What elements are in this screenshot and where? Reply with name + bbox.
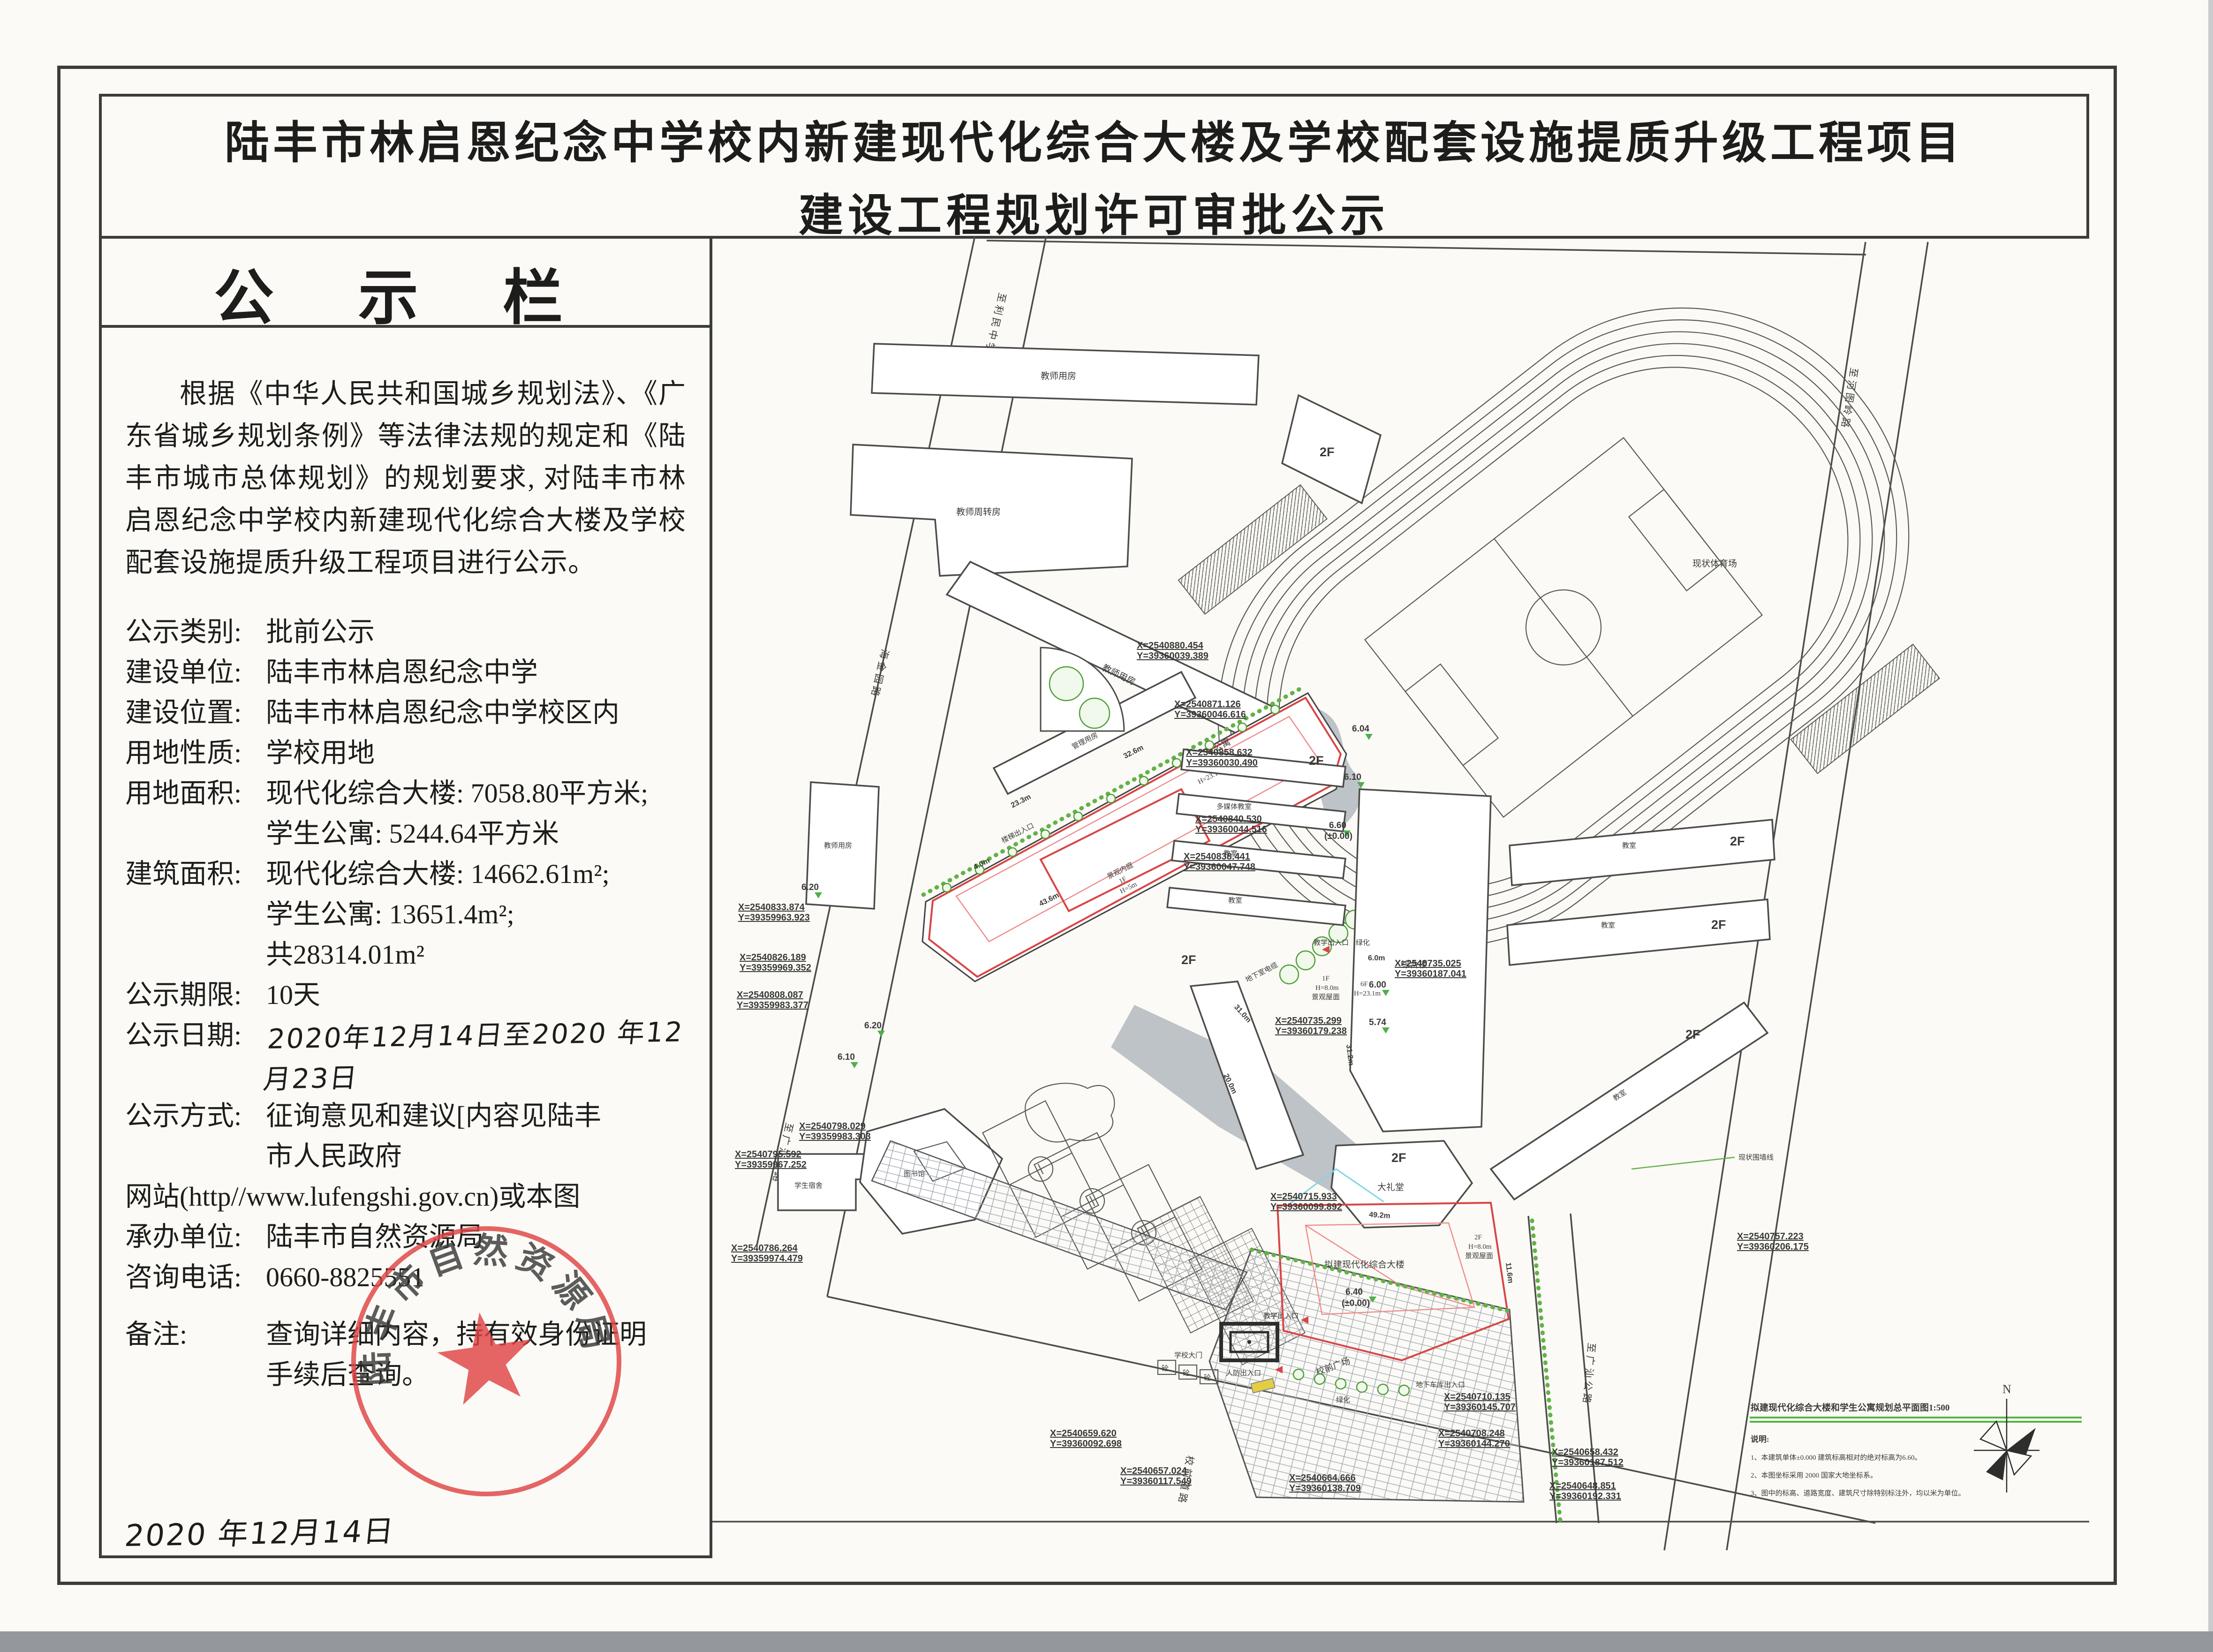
scanned-notice-page: 陆丰市林启恩纪念中学校内新建现代化综合大楼及学校配套设施提质升级工程项目 建设工… xyxy=(0,0,2213,1652)
coord-callout: X=2540795.592Y=39359967.252 xyxy=(735,1149,807,1170)
document-title: 陆丰市林启恩纪念中学校内新建现代化综合大楼及学校配套设施提质升级工程项目 建设工… xyxy=(99,94,2089,239)
field-row: 用地面积:现代化综合大楼: 7058.80平方米; xyxy=(125,773,686,814)
svg-text:景观屋面: 景观屋面 xyxy=(1312,993,1340,1001)
coord-callout: X=2540880.454Y=39360039.389 xyxy=(1137,641,1208,661)
coord-callout: X=2540808.087Y=39359983.377 xyxy=(737,990,808,1011)
svg-text:6.20: 6.20 xyxy=(864,1021,882,1031)
coord-callout: X=2540658.432Y=39360187.512 xyxy=(1552,1447,1624,1468)
svg-text:6.20: 6.20 xyxy=(801,883,819,892)
coord-callout: X=2540858.632Y=39360030.490 xyxy=(1186,747,1258,768)
gate-label: 学校大门 xyxy=(1174,1351,1202,1359)
svg-text:6.60: 6.60 xyxy=(1329,821,1346,830)
website-value: (http//www.lufengshi.gov.cn)或本图 xyxy=(180,1177,580,1217)
green-label: 绿化 xyxy=(1356,939,1370,947)
dim-label: 23.3m xyxy=(1010,793,1032,810)
field-row: 公示方式:征询意见和建议[内容见陆丰 xyxy=(125,1096,686,1136)
coord-callout: X=2540735.299Y=39360179.238 xyxy=(1275,1016,1347,1036)
handwritten-sign-date: 2020 年12月14日 xyxy=(123,1509,458,1557)
scan-edge-right xyxy=(2208,0,2213,1652)
field-cont: 学生公寓: 5244.64平方米 xyxy=(266,814,686,854)
proposed-student-apartment: 拟建学生公寓 6F H=23.10m 景观内庭 1F H=5m 楼梯出入口 xyxy=(922,688,1346,981)
floor-label: 2F xyxy=(1711,918,1726,932)
field-row: 公示期限:10天 xyxy=(125,975,686,1015)
coord-callout: X=2540826.189Y=39359969.352 xyxy=(740,952,811,973)
dim-label: 6.0m xyxy=(1368,954,1385,962)
stair-entry-label: 楼梯出入口 xyxy=(1000,822,1035,845)
field-cont: 共28314.01m² xyxy=(266,935,686,975)
svg-text:1F: 1F xyxy=(1322,975,1329,982)
svg-text:6.10: 6.10 xyxy=(838,1052,855,1062)
road-label-to-limin: 至利民中学 xyxy=(983,292,1008,356)
floor-label: 2F xyxy=(1391,1151,1406,1165)
coord-callout: X=2540838.441Y=39360047.748 xyxy=(1184,852,1255,872)
floor-label: 2F xyxy=(1309,754,1324,768)
building-label: 学生宿舍 xyxy=(794,1182,823,1190)
floor-label: 2F xyxy=(1320,445,1335,459)
coord-callout: X=2540657.024Y=39360117.549 xyxy=(1120,1466,1192,1486)
coord-callout: X=2540664.666Y=39360138.709 xyxy=(1289,1473,1361,1494)
floor-label: 2F xyxy=(1181,953,1196,967)
field-row: 建设位置:陆丰市林启恩纪念中学校区内 xyxy=(125,693,686,733)
handwritten-dates: 2020年12月14日至2020 年12 月23日 xyxy=(261,1011,691,1100)
coord-callout: X=2540757.223Y=39360206.175 xyxy=(1737,1231,1809,1252)
official-red-stamp: 陆丰市自然资源局 xyxy=(343,1218,629,1504)
building-label: 教室 xyxy=(1601,921,1615,929)
roof-label-1f: 1F H=8.0m 景观屋面 xyxy=(1312,975,1340,1001)
field-row: 公示类别:批前公示 xyxy=(125,612,686,652)
cable-label: 地下室电缆 xyxy=(1244,961,1279,984)
bleachers xyxy=(1791,644,1940,774)
note-2: 2、本图坐标采用 2000 国家大地坐标系。 xyxy=(1751,1471,1877,1479)
notice-board-panel: 公 示 栏 根据《中华人民共和国城乡规划法》、《广东省城乡规划条例》等法律法规的… xyxy=(99,236,712,1558)
field-cont: 学生公寓: 13651.4m²; xyxy=(266,894,686,935)
svg-text:6F: 6F xyxy=(1360,981,1368,988)
stamp-star xyxy=(432,1306,538,1407)
floor-label: 2F xyxy=(1730,834,1745,848)
tree-icon xyxy=(1050,667,1083,701)
svg-text:(±0.00): (±0.00) xyxy=(1324,831,1352,841)
building-label: 教师用房 xyxy=(824,842,852,850)
coord-callout: X=2540871.126Y=39360046.616 xyxy=(1174,699,1246,720)
garage-label: 地下车库出入口 xyxy=(1416,1381,1465,1389)
coord-callout: X=2540659.620Y=39360092.698 xyxy=(1050,1428,1122,1449)
building-label: 教室 xyxy=(1228,897,1242,905)
svg-text:H=8.0m: H=8.0m xyxy=(1468,1243,1492,1251)
road-label-left-road: 海金园路 xyxy=(869,648,891,700)
elevation-marker: 6.04 xyxy=(1352,724,1373,740)
field-cont: 市人民政府 xyxy=(266,1136,686,1177)
note-1: 1、本建筑单体±0.000 建筑标高相对的绝对标高为6.60。 xyxy=(1751,1454,1922,1462)
green-label: 绿化 xyxy=(1336,1396,1350,1404)
map-legend: 拟建现代化综合大楼和学生公寓规划总平面图1:500 说明: 1、本建筑单体±0.… xyxy=(1750,1402,2082,1497)
svg-text:6.40: 6.40 xyxy=(1345,1287,1363,1297)
svg-text:砼: 砼 xyxy=(1162,1365,1169,1373)
coord-callout: X=2540786.264Y=39359974.479 xyxy=(731,1243,803,1264)
dim-label: 11.6m xyxy=(1504,1262,1514,1283)
coord-callout: X=2540648.851Y=39360192.331 xyxy=(1549,1481,1621,1501)
building-label: 大礼堂 xyxy=(1377,1182,1404,1192)
svg-text:H=8.0m: H=8.0m xyxy=(1315,984,1339,992)
title-line-2: 建设工程规划许可审批公示 xyxy=(102,180,2086,244)
teach-entry-label: 教学出入口 xyxy=(1314,939,1349,947)
svg-text:6.00: 6.00 xyxy=(1369,980,1386,990)
north-compass-icon: N xyxy=(1974,1382,2039,1493)
svg-text:砼: 砼 xyxy=(1204,1374,1211,1382)
green-underline xyxy=(1750,1418,2082,1422)
pond xyxy=(1025,1083,1114,1142)
scan-edge-bottom xyxy=(0,1631,2213,1652)
building-label: 教师周转房 xyxy=(956,507,1001,517)
map-title: 拟建现代化综合大楼和学生公寓规划总平面图1:500 xyxy=(1751,1402,1949,1413)
hedge-line xyxy=(1532,1221,1560,1521)
title-line-1: 陆丰市林启恩纪念中学校内新建现代化综合大楼及学校配套设施提质升级工程项目 xyxy=(102,107,2086,171)
field-row: 建筑面积:现代化综合大楼: 14662.61m²; xyxy=(125,854,686,894)
stadium-label: 现状体育场 xyxy=(1692,558,1737,569)
elevation-marker: 6.10 xyxy=(838,1052,858,1068)
field-row: 用地性质:学校用地 xyxy=(125,733,686,773)
svg-text:6.10: 6.10 xyxy=(1344,772,1361,782)
main-building-label: 拟建现代化综合大楼 xyxy=(1324,1260,1405,1270)
building-label: 教室 xyxy=(1622,842,1636,850)
svg-text:6.04: 6.04 xyxy=(1352,724,1369,734)
svg-text:景观屋面: 景观屋面 xyxy=(1465,1252,1493,1260)
svg-text:现状围墙线: 现状围墙线 xyxy=(1738,1154,1774,1162)
wall-note: 现状围墙线 xyxy=(1631,1154,1774,1169)
note-head: 说明: xyxy=(1751,1434,1769,1444)
svg-text:N: N xyxy=(2002,1382,2011,1396)
intro-paragraph: 根据《中华人民共和国城乡规划法》、《广东省城乡规划条例》等法律法规的规定和《陆丰… xyxy=(125,373,686,584)
dim-label: 32.6m xyxy=(1122,744,1145,761)
tree-icon xyxy=(1080,698,1110,728)
website-label: 网站 xyxy=(125,1177,180,1217)
svg-text:砼: 砼 xyxy=(1183,1369,1190,1377)
coord-callout: X=2540735.025Y=39360187.041 xyxy=(1395,958,1466,979)
building-label: 多媒体教室 xyxy=(1216,803,1252,811)
coord-callout: X=2540840.530Y=39360044.516 xyxy=(1195,814,1267,835)
building-label: 教师用房 xyxy=(1041,371,1076,381)
coord-callout: X=2540710.135Y=39360145.707 xyxy=(1444,1392,1516,1412)
svg-text:H=23.1m: H=23.1m xyxy=(1354,990,1381,997)
site-plan-map: 至利民中学 海金园路 至广汕公路 至河图岭路 至广汕公路 校前道路 现状体育场 xyxy=(712,236,2089,1558)
bleachers xyxy=(1178,485,1327,614)
note-3: 3、图中的标高、道路宽度、建筑尺寸除特别标注外，均以米为单位。 xyxy=(1751,1489,1965,1497)
civil-entry-label: 人防出入口 xyxy=(1226,1369,1261,1377)
field-row-website: 网站(http//www.lufengshi.gov.cn)或本图 xyxy=(125,1177,686,1217)
coord-callout: X=2540833.874Y=39359963.923 xyxy=(738,902,810,923)
field-row: 建设单位:陆丰市林启恩纪念中学 xyxy=(125,652,686,693)
floor-label: 2F xyxy=(1685,1027,1700,1041)
board-header: 公 示 栏 xyxy=(102,236,710,328)
svg-text:2F: 2F xyxy=(1474,1234,1482,1241)
coord-callout: X=2540708.248Y=39360144.270 xyxy=(1438,1428,1510,1449)
coord-callout: X=2540798.029Y=39359983.303 xyxy=(799,1121,871,1142)
svg-text:(±0.00): (±0.00) xyxy=(1342,1298,1370,1308)
teach-entry-label: 教学出入口 xyxy=(1263,1312,1299,1320)
coord-callout: X=2540715.933Y=39360099.892 xyxy=(1270,1192,1342,1212)
field-row-date: 公示日期:2020年12月14日至2020 年12 月23日 xyxy=(125,1015,686,1096)
dim-label: 49.2m xyxy=(1369,1211,1390,1220)
roof-label-2f: 2F H=8.0m 景观屋面 xyxy=(1465,1234,1493,1260)
svg-text:5.74: 5.74 xyxy=(1369,1018,1386,1027)
